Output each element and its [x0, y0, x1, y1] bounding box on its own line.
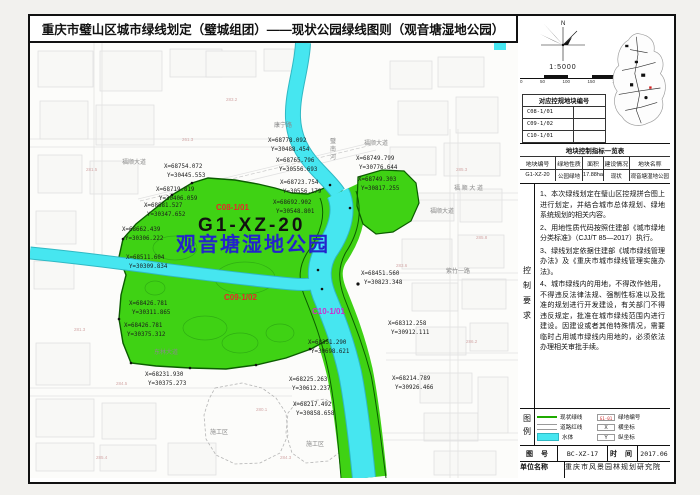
locator-map [606, 18, 670, 142]
plot-label: 观音塘湿地公园 [176, 232, 330, 256]
coordinate-label-x: X=68426.781 [129, 301, 168, 307]
legend-item-label: 绿地编号 [618, 413, 640, 421]
road-label: 康宁路 [274, 121, 292, 129]
coordinate-label-x: X=68749.303 [358, 177, 397, 183]
scale-ticks: 050100150200 [520, 79, 620, 84]
screenshot-root: { "title": "重庆市璧山区城市绿线划定（璧城组团）——现状公园绿线图则… [0, 0, 700, 495]
plot-code: C08-1/01 [523, 107, 574, 118]
requirement-item: 4、城市绿线内的用地，不得改作他用，不得违反法律法规、强制性标准以及批准的规划进… [540, 280, 665, 354]
legend-item: 道路红线 [537, 422, 597, 432]
code-symbol: G1-01 [597, 414, 615, 421]
elevation-label: 283.6 [396, 263, 408, 268]
box-symbol: X [597, 424, 615, 431]
coordinate-label-y: Y=30858.658 [296, 411, 335, 417]
north-scale-panel: N 1:5000 050100150200 对应控规地块编号 C08-1/01C… [520, 16, 606, 143]
plot-label: C09-1/02 [224, 293, 257, 302]
plot-label: C10-1/01 [312, 307, 345, 316]
coordinate-label-y: Y=30309.834 [129, 264, 168, 270]
requirements-text: 1、本次绿线划定在璧山区控规拼合图上进行划定，并结合城市总体规划、绿地系统规划的… [535, 184, 670, 408]
coordinate-label-x: X=68217.492 [293, 402, 331, 408]
plot-code-row: C09-1/02 [523, 119, 605, 131]
map-canvas: X=68778.092Y=30488.454X=68765.796Y=30556… [30, 43, 518, 478]
control-table-title: 地块控制指标一览表 [520, 144, 670, 157]
elevation-label: 281.3 [74, 327, 86, 332]
legend-item-label: 纵坐标 [618, 433, 635, 441]
plot-code-row: C08-1/01 [523, 107, 605, 119]
legend-right-column: G1-01绿地编号X横坐标Y纵坐标 [597, 412, 668, 442]
control-table-header: 地块编号 [520, 157, 556, 170]
unit-row: 单位名称 重庆市风景园林规划研究院 [520, 462, 670, 478]
control-table-cell: 观音塘湿地公园 [630, 170, 671, 181]
road-label: 福顺大道 [364, 139, 388, 147]
coordinate-label-x: X=68426.781 [124, 323, 163, 329]
coordinate-label-y: Y=30445.553 [167, 173, 206, 179]
coordinate-label-x: X=68749.799 [356, 156, 395, 162]
coordinate-label-x: X=68225.263 [289, 377, 328, 383]
requirements-label: 控制要求 [520, 184, 535, 408]
control-table-header: 建设情况 [604, 157, 630, 170]
coordinate-label-x: X=68754.072 [164, 164, 202, 170]
control-table-cell: 公园绿地 [556, 170, 583, 181]
elevation-label: 285.8 [476, 235, 488, 240]
coordinate-label-x: X=68662.439 [122, 227, 161, 233]
legend-item-label: 水体 [562, 433, 573, 441]
legend-item: 水体 [537, 432, 597, 442]
north-arrow: N [527, 17, 599, 63]
coordinate-label-y: Y=30347.652 [147, 212, 185, 218]
greenline-symbol [537, 416, 557, 418]
unit-label: 单位名称 [520, 462, 565, 478]
requirement-item: 1、本次绿线划定在璧山区控规拼合图上进行划定，并结合城市总体规划、绿地系统规划的… [540, 190, 665, 222]
plot-code: C09-1/02 [523, 119, 574, 130]
elevation-label: 286.2 [466, 339, 478, 344]
small-water-patch [494, 43, 506, 50]
elevation-label: 284.3 [280, 455, 292, 460]
river-name-label: 璧 [330, 137, 336, 145]
elevation-label: 284.5 [116, 381, 128, 386]
coordinate-label-y: Y=30306.222 [125, 236, 163, 242]
scale-tick: 0 [520, 79, 523, 84]
control-table-cell: G1-XZ-20 [520, 170, 556, 181]
requirements-section: 控制要求 1、本次绿线划定在璧山区控规拼合图上进行划定，并结合城市总体规划、绿地… [520, 184, 670, 409]
road-label: 紫竹一路 [446, 267, 470, 275]
road-label: 福顺大道 [430, 207, 454, 215]
river-name-label: 河 [330, 153, 336, 161]
locator-panel [606, 16, 670, 143]
coordinate-label-y: Y=30612.237 [292, 386, 331, 392]
plan-sheet: 重庆市璧山区城市绿线划定（璧城组团）——现状公园绿线图则（观音塘湿地公园） [28, 14, 676, 484]
scale-text: 1:5000 [520, 64, 606, 71]
scale-tick: 100 [562, 79, 570, 84]
coordinate-label-x: X=68351.290 [308, 340, 347, 346]
control-table-row: G1-XZ-20公园绿地17.88ha现状观音塘湿地公园 [520, 170, 670, 181]
sidebar: N 1:5000 050100150200 对应控规地块编号 C08-1/01C… [520, 16, 670, 478]
legend-item: Y纵坐标 [597, 432, 668, 442]
requirement-item: 3、绿线划定依据住建部《城市绿线管理办法》及《重庆市城市绿线管理实施办法》。 [540, 247, 665, 279]
plot-label: C08-1/01 [216, 203, 249, 212]
elevation-label: 283.2 [226, 97, 238, 102]
coordinate-label-x: X=68719.819 [156, 187, 195, 193]
coordinate-label-y: Y=30488.454 [271, 147, 310, 153]
north-label: N [561, 21, 565, 27]
coordinate-label-x: X=68214.789 [392, 376, 431, 382]
orientation-section: N 1:5000 050100150200 对应控规地块编号 C08-1/01C… [520, 16, 670, 144]
road-label: 福顺大道 [122, 158, 146, 166]
road-label: 东林大道 [154, 348, 178, 356]
coordinate-label-y: Y=30556.179 [283, 189, 322, 195]
box-symbol: Y [597, 434, 615, 441]
legend-item: X横坐标 [597, 422, 668, 432]
coordinate-label-y: Y=30817.255 [361, 186, 400, 192]
coordinate-label-y: Y=30375.312 [127, 332, 165, 338]
scale-bar [520, 73, 616, 79]
water-symbol [537, 433, 559, 441]
coordinate-label-x: X=68723.754 [280, 180, 319, 186]
coordinate-label-x: X=68765.796 [276, 158, 315, 164]
coordinate-label-x: X=68681.527 [144, 203, 183, 209]
control-table-cell: 现状 [604, 170, 630, 181]
coordinate-label-y: Y=30375.273 [148, 381, 187, 387]
coordinate-label-y: Y=30311.865 [132, 310, 171, 316]
elevation-label: 285.4 [96, 455, 108, 460]
coordinate-label-y: Y=30912.111 [391, 330, 430, 336]
coordinate-label-x: X=68511.604 [126, 255, 165, 261]
date-value: 2017.06 [638, 446, 670, 461]
coordinate-label-x: X=68778.092 [268, 138, 306, 144]
coordinate-label-y: Y=30698.621 [311, 349, 350, 355]
control-table-cell: 17.88ha [583, 170, 604, 181]
plot-table-title: 对应控规地块编号 [523, 95, 605, 107]
coordinate-label-x: X=68692.902 [273, 200, 311, 206]
drawing-number: BC-XZ-17 [558, 446, 608, 461]
coordinate-label-y: Y=30823.348 [364, 280, 403, 286]
date-label: 时 间 [608, 446, 638, 461]
legend-label: 图例 [520, 409, 535, 445]
scale-tick: 50 [540, 79, 545, 84]
scale-tick: 150 [587, 79, 595, 84]
coordinate-label-y: Y=30406.059 [159, 196, 198, 202]
page-title: 重庆市璧山区城市绿线划定（璧城组团）——现状公园绿线图则（观音塘湿地公园） [30, 16, 518, 43]
road-label: 施工区 [306, 440, 324, 448]
plot-code: C10-1/01 [523, 131, 574, 142]
legend-left-column: 现状绿线道路红线水体 [537, 412, 597, 442]
locator-site-marker [649, 86, 651, 88]
planning-map: X=68778.092Y=30488.454X=68765.796Y=30556… [30, 43, 518, 478]
legend-section: 图例 现状绿线道路红线水体 G1-01绿地编号X横坐标Y纵坐标 [520, 409, 670, 446]
elevation-label: 281.5 [86, 167, 98, 172]
coordinate-label-y: Y=30926.466 [395, 385, 434, 391]
plot-code-row: C10-1/01 [523, 131, 605, 143]
plot-label: G1-XZ-20 [198, 215, 305, 236]
elevation-label: 285.3 [456, 167, 468, 172]
control-table-header: 面积 [583, 157, 604, 170]
legend-item-label: 横坐标 [618, 423, 635, 431]
legend-item-label: 道路红线 [560, 423, 582, 431]
regulatory-plot-table: 对应控规地块编号 C08-1/01C09-1/02C10-1/01 [522, 94, 606, 143]
control-table-head: 地块编号绿地性质面积建设情况地块名称 [520, 157, 670, 170]
road-label: 施工区 [210, 428, 228, 436]
roadline-symbol [537, 424, 557, 430]
road-label: 福 顺 大 道 [454, 184, 483, 192]
coordinate-label-x: X=68451.560 [361, 271, 400, 277]
elevation-label: 280.1 [256, 407, 268, 412]
unit-name: 重庆市风景园林规划研究院 [565, 462, 670, 478]
drawing-number-label: 图 号 [520, 446, 558, 461]
coordinate-label-x: X=68231.930 [145, 372, 184, 378]
coordinate-label-y: Y=30776.644 [359, 165, 398, 171]
control-indicator-section: 地块控制指标一览表 地块编号绿地性质面积建设情况地块名称 G1-XZ-20公园绿… [520, 144, 670, 184]
river-name-label: 南 [330, 145, 336, 153]
legend-item: 现状绿线 [537, 412, 597, 422]
legend-item: G1-01绿地编号 [597, 412, 668, 422]
control-table-header: 地块名称 [630, 157, 671, 170]
titleblock-row: 图 号 BC-XZ-17 时 间 2017.06 [520, 446, 670, 462]
coordinate-label-y: Y=30556.693 [279, 167, 318, 173]
coordinate-label-x: X=68312.258 [388, 321, 427, 327]
requirement-item: 2、用地性质代码按照住建部《城市绿地分类标准》（CJJ/T 85—2017）执行… [540, 224, 665, 245]
legend-item-label: 现状绿线 [560, 413, 582, 421]
control-table-header: 绿地性质 [556, 157, 583, 170]
construction-zone-boundary [204, 383, 348, 464]
elevation-label: 261.3 [182, 137, 194, 142]
